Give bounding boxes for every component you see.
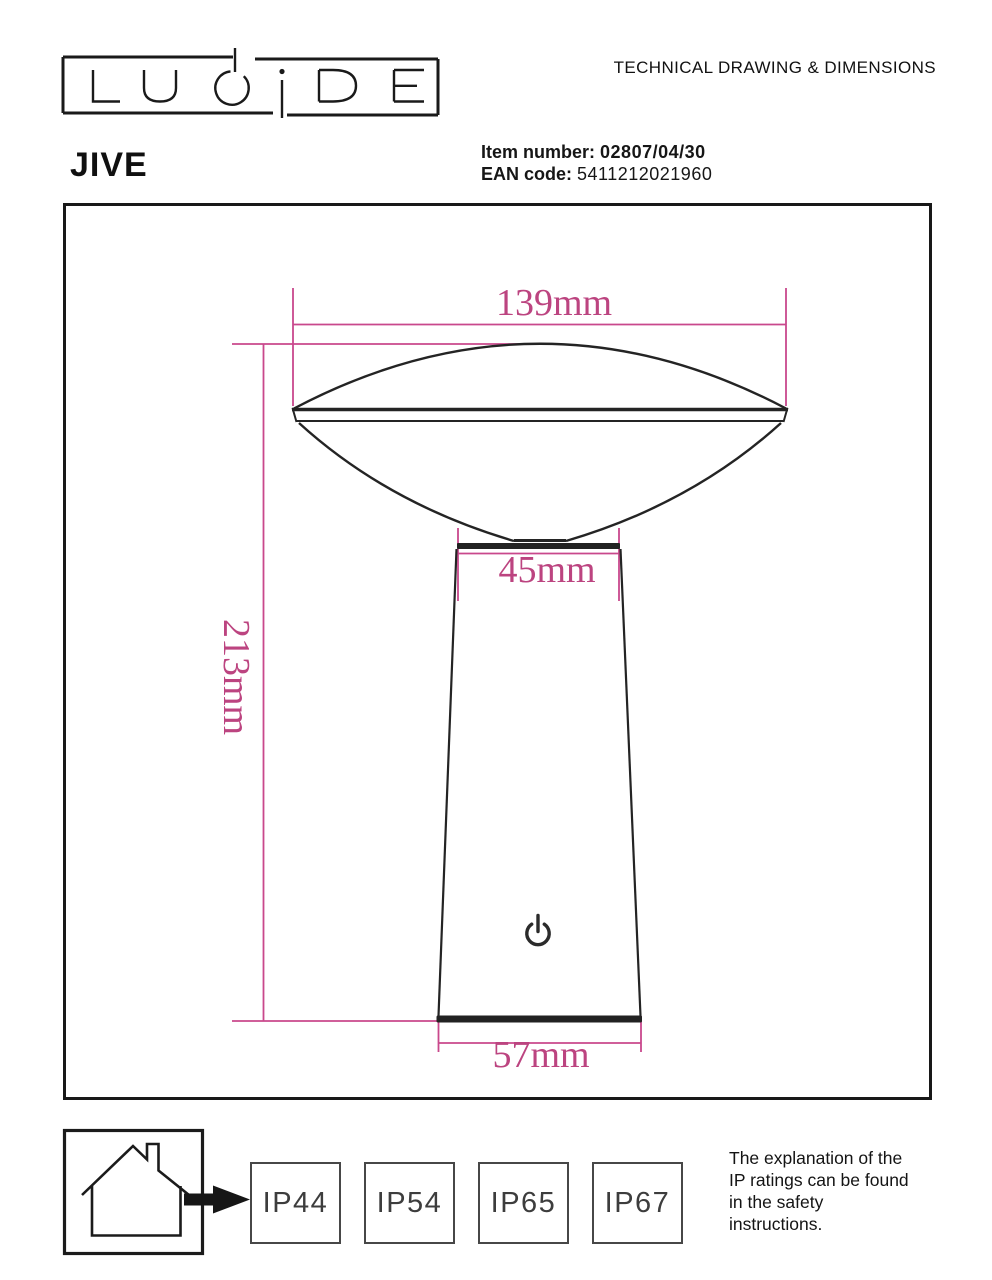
item-number-label: Item number: [481, 142, 595, 162]
lucide-logo-icon [63, 48, 438, 118]
product-name: JIVE [70, 146, 148, 185]
ean-code-row: EAN code: 5411212021960 [481, 163, 712, 185]
datasheet-page: TECHNICAL DRAWING & DIMENSIONS JIVE Item… [0, 0, 992, 1280]
product-meta: Item number: 02807/04/30 EAN code: 54112… [481, 141, 712, 185]
dimension-label-height: 213mm [213, 607, 259, 747]
dimension-label-base-width: 57mm [461, 1036, 621, 1074]
logo-letter-E [394, 70, 424, 102]
ean-value: 5411212021960 [577, 164, 712, 184]
item-number-value: 02807/04/30 [600, 142, 706, 162]
logo-letter-L [93, 70, 120, 102]
logo-letter-D [319, 70, 356, 102]
ip-ratings-note: The explanation of the IP ratings can be… [729, 1147, 959, 1235]
dimension-label-neck-width: 45mm [467, 551, 627, 589]
ip-rating-badge-ip65: IP65 [478, 1162, 569, 1244]
logo-letter-i-dot [279, 69, 284, 74]
doc-title: TECHNICAL DRAWING & DIMENSIONS [614, 58, 936, 78]
ip-rating-badge-ip44: IP44 [250, 1162, 341, 1244]
dimension-label-top-width: 139mm [474, 284, 634, 322]
logo-letter-C [215, 71, 248, 104]
drawing-frame [63, 203, 932, 1100]
house-walls [92, 1186, 181, 1236]
ip-rating-badge-ip67: IP67 [592, 1162, 683, 1244]
indoor-house-icon [65, 1131, 203, 1254]
house-roof-chimney [82, 1144, 189, 1195]
item-number-row: Item number: 02807/04/30 [481, 141, 712, 163]
ean-label: EAN code: [481, 164, 572, 184]
house-icon-box [65, 1131, 203, 1254]
arrow-right-icon [184, 1186, 250, 1214]
ip-rating-badge-ip54: IP54 [364, 1162, 455, 1244]
logo-letter-U [144, 70, 176, 102]
